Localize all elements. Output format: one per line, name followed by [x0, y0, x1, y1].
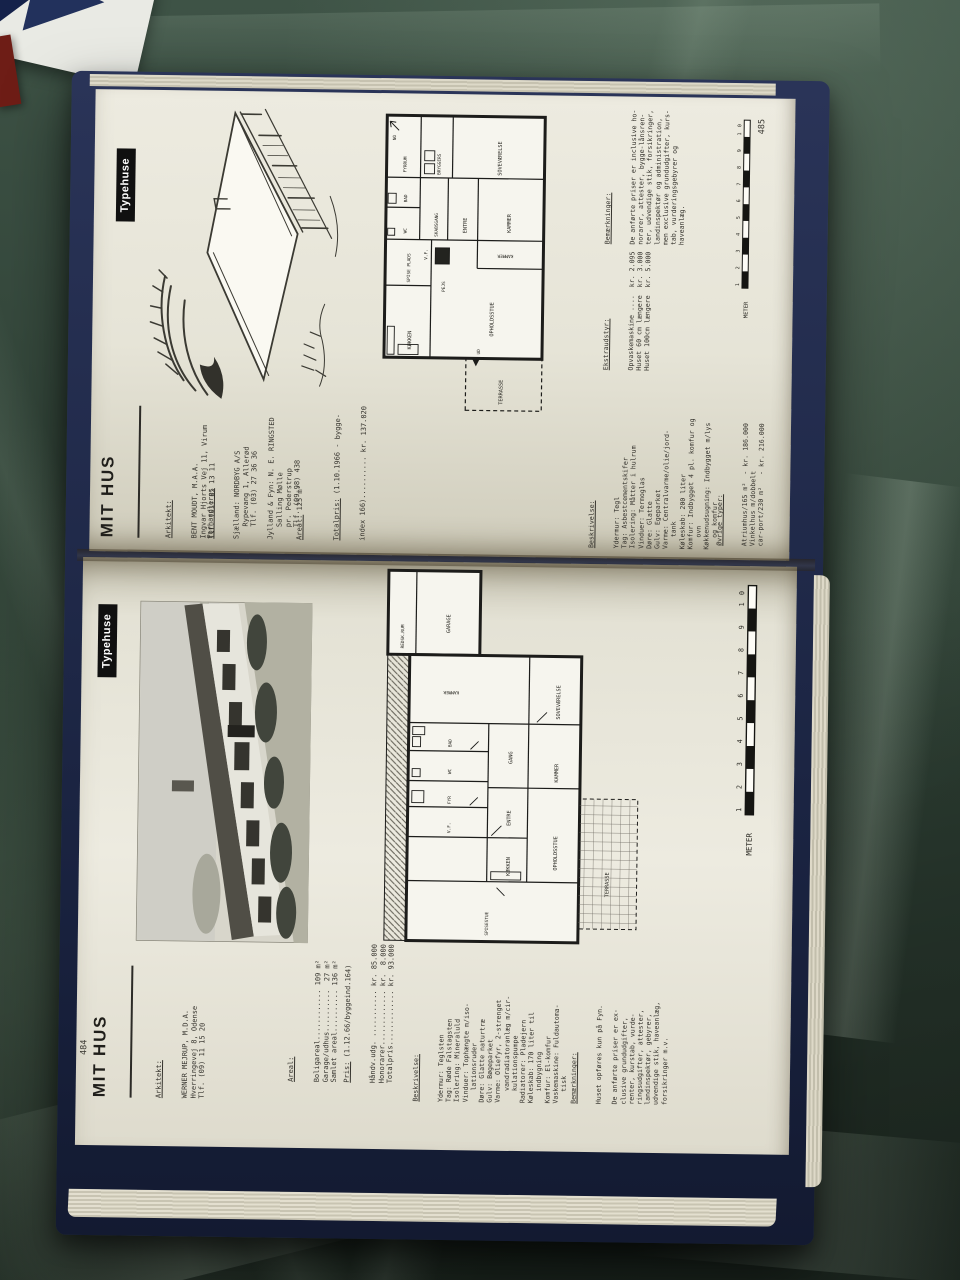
room-label-spise-plads: SPISE PLADS: [406, 253, 412, 283]
sketch-lines: [149, 108, 339, 401]
other-types-lines: Atriumhus/165 m² - kr. 186.000 Vinkelhus…: [740, 423, 766, 546]
room-label-redskabsrum: REDSK.RUM: [400, 624, 406, 648]
page-484-content: 484 MIT HUS Arkitekt: WERNER MEJRUP, M.D…: [75, 557, 797, 1155]
remarks-lines: Huset opføres kun på Fyn. De anførte pri…: [595, 1001, 670, 1105]
room-label-vf: V.F.: [423, 249, 429, 260]
exit-label: UD: [476, 349, 482, 355]
total-price-rest: (1.10.1966 - bygge-: [333, 414, 342, 498]
room-label-kammer-a: KAMMER: [507, 213, 513, 233]
room-label-bad: BAD: [448, 739, 454, 747]
area-value: 125 m²: [296, 485, 304, 515]
room-label-fyrrum: FYRRUM: [403, 156, 409, 172]
area-label: Areal:: [295, 515, 303, 540]
room-label-vf: V.F.: [446, 822, 452, 833]
meter-scale-numbers: 1 2 3 4 5 6 7 8 9 10: [735, 591, 746, 812]
typehuse-tab: Typehuse: [97, 605, 117, 678]
room-label-kammer-a: KAMMER: [443, 689, 459, 695]
page-485-content: MIT HUS Arkitekt: BENT MOUDT, M.A.A. Ing…: [89, 89, 795, 561]
room-label-sovevaerelse: SOVEVÆRELSE: [556, 685, 562, 719]
paper-triangle-decoration: [17, 0, 107, 53]
price-lines: Håndv.udg. ........... kr. 85.000 Honora…: [369, 944, 397, 1083]
floor-plan-484: REDSK.RUM GARAGE KAMMER SOVEVÆRELSE V.F.…: [376, 566, 649, 960]
description-lines: Ydermur: Teglsten Tag: Røde Falstagsten …: [437, 995, 570, 1104]
room-label-kammer-b: KAMMER: [497, 253, 513, 259]
price-label: Pris:: [343, 1062, 351, 1083]
house-sketch: [143, 102, 343, 407]
room-label-skabsgang: SKABSGANG: [434, 213, 440, 237]
floor-plan-485: KØKKEN SPISE PLADS PEJS UD OPHOLDSSTUE T…: [379, 110, 551, 417]
room-label-terrasse: TERRASSE: [498, 380, 504, 405]
room-label-sovevaerelse: SOVEVÆRELSE: [497, 141, 503, 175]
room-label-fyr: FYR: [447, 796, 453, 804]
room-label-terrasse: TERRASSE: [604, 872, 610, 897]
architect-lines: WERNER MEJRUP, M.D.A. Hverringevej 8, Od…: [181, 1006, 208, 1099]
meter-scale: METER 1 2 3 4 5 6 7 8 9 10: [731, 579, 765, 859]
architect-heading: Arkitekt:: [155, 1005, 165, 1098]
page-number: 484: [79, 1040, 89, 1055]
photo-scene: MIT HUS Arkitekt: BENT MOUDT, M.A.A. Ing…: [0, 0, 960, 1280]
room-label-bad: BAD: [403, 194, 409, 202]
total-price: Totalpris: (1.10.1966 - bygge- index 166…: [315, 405, 386, 541]
room-label-pejs: PEJS: [441, 281, 447, 292]
house-photo: [136, 601, 313, 943]
open-book: MIT HUS Arkitekt: BENT MOUDT, M.A.A. Ing…: [68, 79, 821, 1201]
masthead: MIT HUS: [97, 455, 118, 538]
page-number: 485: [757, 119, 767, 134]
architect-info: Arkitekt: WERNER MEJRUP, M.D.A. Hverring…: [138, 1005, 225, 1099]
remarks-heading: Bemærkninger:: [570, 1001, 580, 1104]
dealers-heading: Forhandlere:: [207, 416, 217, 538]
remarks: Bemærkninger: Huset opføres kun på Fyn. …: [554, 1000, 687, 1105]
room-label-opholdsstue: OPHOLDSSTUE: [489, 302, 495, 336]
dealers-lines: Sjælland: NORDBYG A/S Rypevang 1, Allerø…: [232, 417, 302, 540]
area-heading: Areal:: [287, 960, 297, 1082]
north-label: NO: [392, 135, 398, 141]
meter-scale-label: METER: [744, 833, 753, 856]
room-label-garage: GARAGE: [446, 614, 452, 633]
room-label-koekken: KØKKEN: [505, 857, 512, 876]
total-price-amount: index 166).......... kr. 137.020: [358, 406, 368, 541]
room-label-spisestue: SPISESTUE: [484, 911, 490, 935]
house-photo-graphic: [136, 601, 313, 943]
room-label-gang: GANG: [508, 751, 514, 764]
remarks-lines: De anførte priser er inclusive ho- norar…: [629, 110, 688, 246]
masthead-rule: [137, 406, 141, 538]
other-types-heading: Øvrige typer:: [716, 423, 726, 546]
room-label-wc: WC: [403, 228, 409, 234]
room-label-kammer-b: KAMMER: [554, 763, 560, 783]
meter-scale-bar: [745, 586, 756, 815]
area-info: Areal: 125 m²: [295, 485, 304, 540]
meter-scale: METER 1 2 3 4 5 6 7 8 9 10: [731, 118, 760, 318]
other-types: Øvrige typer: Atriumhus/165 m² - kr. 186…: [699, 422, 783, 546]
room-label-entre: ENTRE: [506, 810, 512, 826]
extras: Ekstraudstyr: Opvaskemaskine .... kr. 2.…: [586, 251, 670, 371]
room-label-koekken: KØKKEN: [406, 331, 413, 350]
meter-scale-label: METER: [744, 301, 750, 318]
description-heading: Beskrivelse:: [588, 417, 598, 548]
extras-lines: Opvaskemaskine .... kr. 2.095 Huset 60 c…: [627, 251, 653, 370]
description-heading: Beskrivelse:: [412, 994, 422, 1101]
remarks: Bemærkninger: De anførte priser er inclu…: [588, 109, 705, 246]
remarks-heading: Bemærkninger:: [604, 109, 614, 244]
exit-arrow-icon: [472, 358, 480, 366]
price-index: (1.12.66/byggeind.164): [343, 965, 352, 1062]
page-485: MIT HUS Arkitekt: BENT MOUDT, M.A.A. Ing…: [89, 89, 795, 561]
extras-heading: Ekstraudstyr:: [602, 251, 612, 370]
room-label-opholdsstue: OPHOLDSSTUE: [553, 836, 559, 870]
room-label-entre: ENTRE: [463, 218, 469, 234]
meter-scale-bar: [742, 120, 750, 288]
page-484: 484 MIT HUS Arkitekt: WERNER MEJRUP, M.D…: [75, 557, 797, 1155]
typehuse-tab: Typehuse: [116, 149, 136, 222]
room-label-wc: WC: [447, 768, 453, 774]
masthead-rule: [130, 966, 134, 1098]
masthead: MIT HUS: [90, 1015, 111, 1098]
room-label-bryggers: BRYGGERS: [436, 153, 442, 175]
total-price-label: Totalpris:: [333, 498, 342, 540]
architect-heading: Arkitekt:: [165, 424, 175, 538]
